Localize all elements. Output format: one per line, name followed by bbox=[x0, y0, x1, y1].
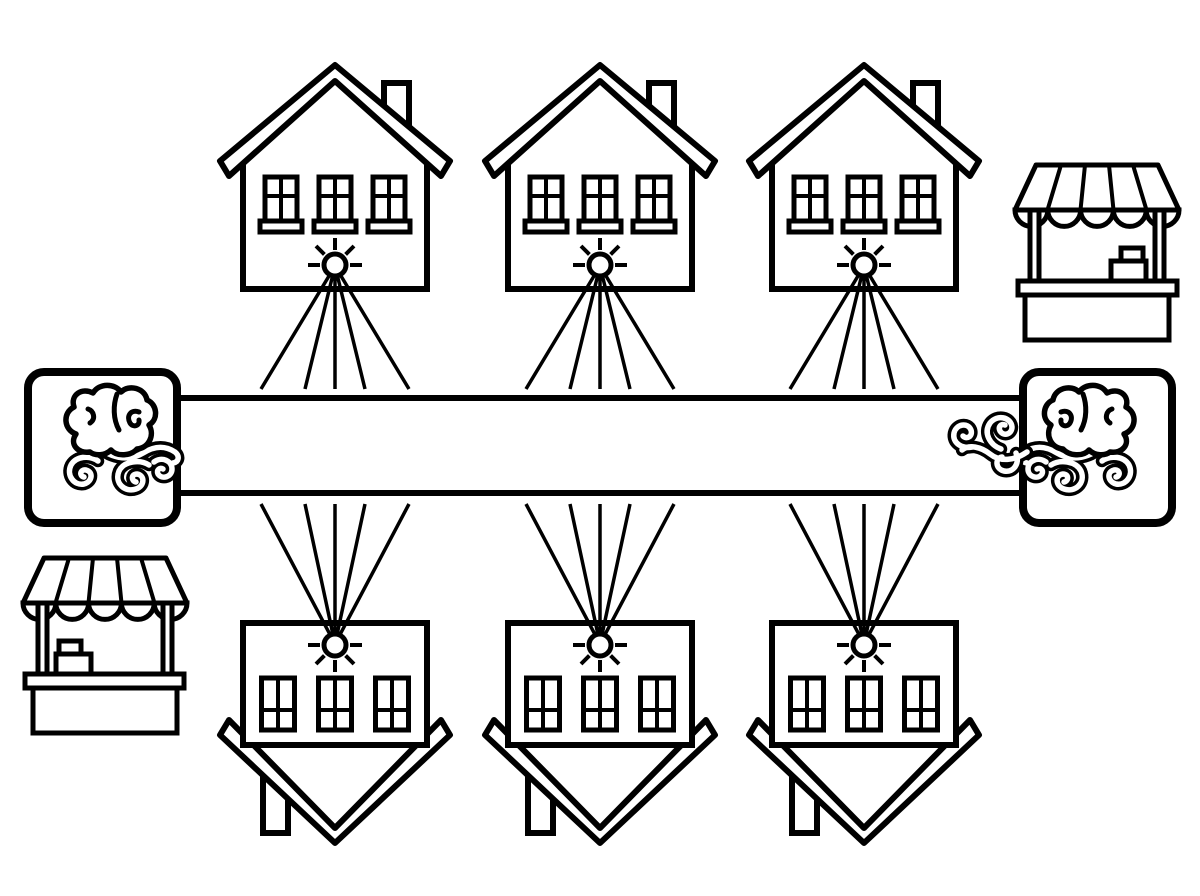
stall-bottom-left bbox=[23, 558, 187, 733]
top-houses-row bbox=[220, 65, 979, 389]
house-icon bbox=[485, 65, 715, 389]
brain-box-right bbox=[954, 372, 1172, 523]
stall-top-right bbox=[1015, 165, 1179, 340]
bottom-houses-row bbox=[220, 504, 979, 843]
inverted-house-icon bbox=[220, 504, 450, 843]
brain-box-left bbox=[28, 372, 178, 523]
house-icon bbox=[220, 65, 450, 389]
house-icon bbox=[749, 65, 979, 389]
connection-bar bbox=[177, 398, 1023, 493]
diagram-canvas bbox=[0, 0, 1200, 896]
inverted-house-icon bbox=[485, 504, 715, 843]
inverted-house-icon bbox=[749, 504, 979, 843]
